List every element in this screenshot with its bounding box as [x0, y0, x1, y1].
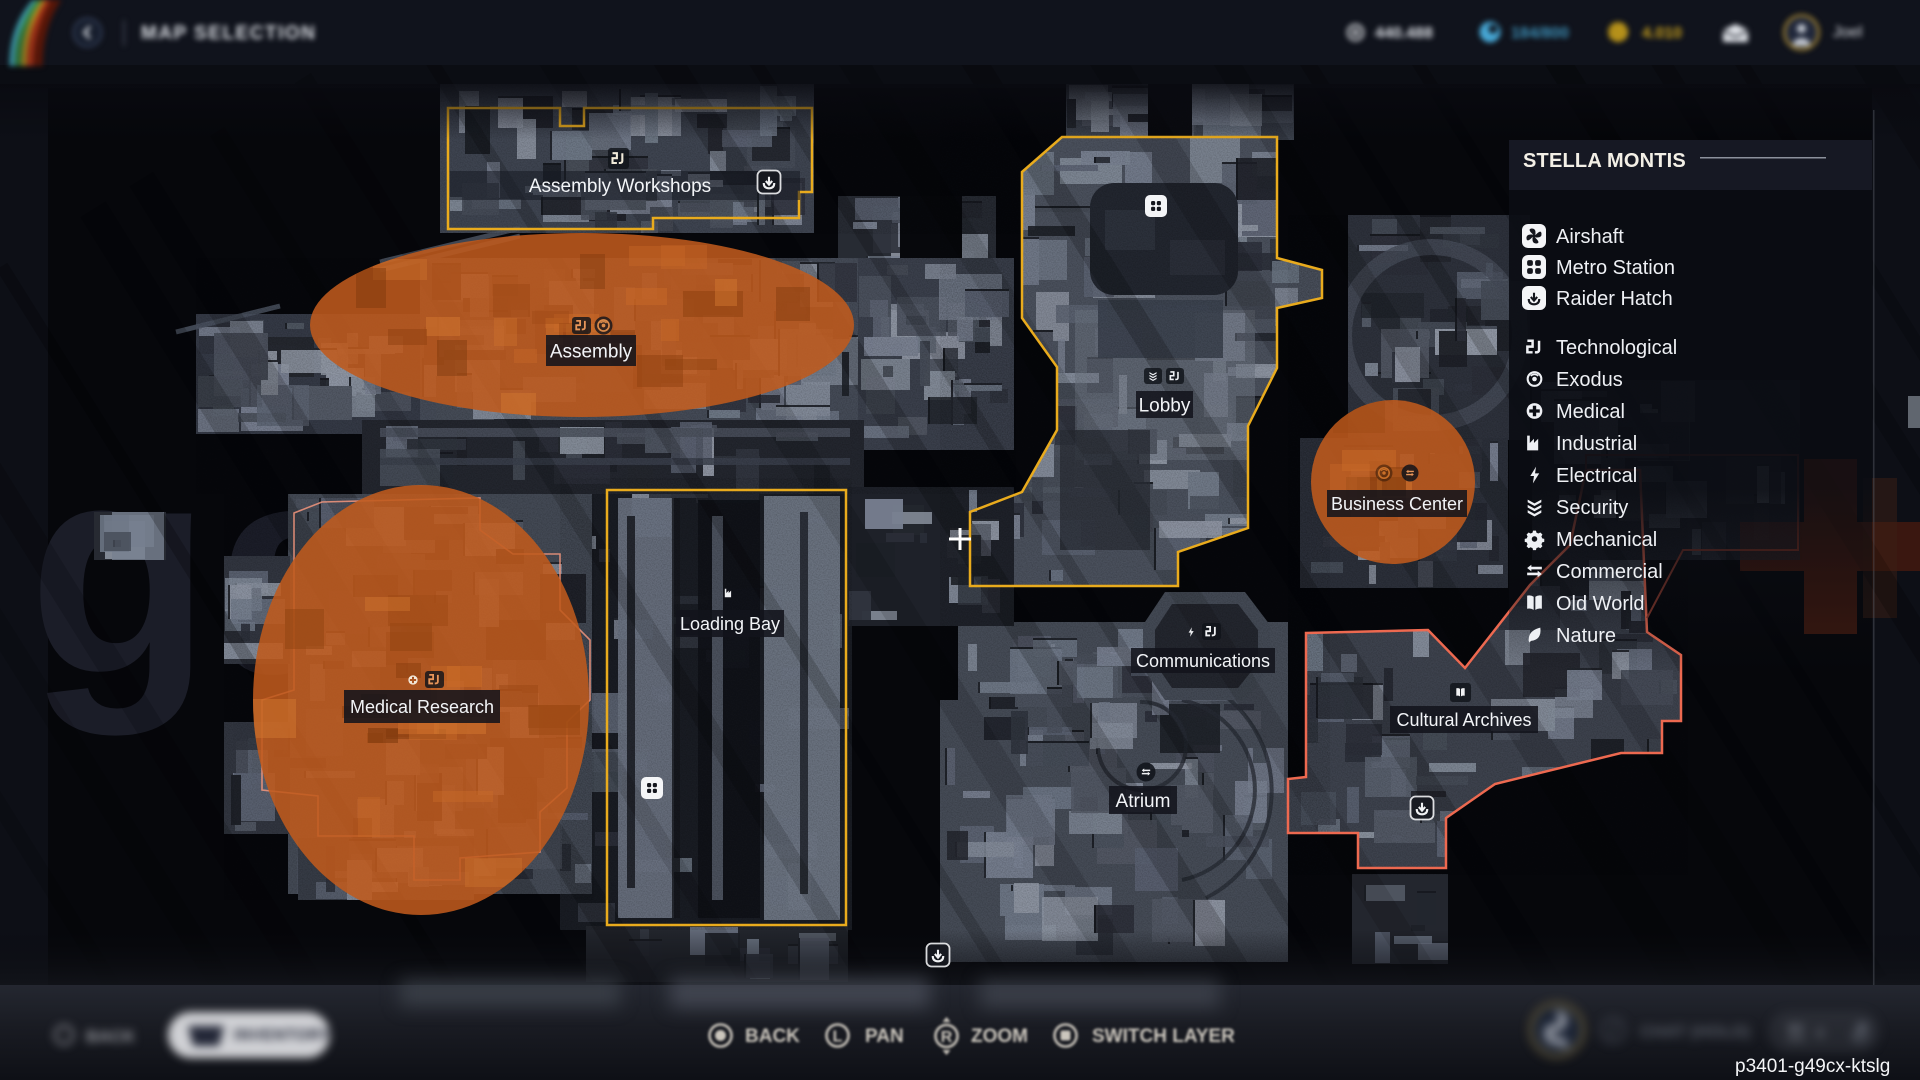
- svg-text:Communications: Communications: [1136, 651, 1270, 671]
- svg-text:0: 0: [1816, 1025, 1824, 1042]
- svg-text:Medical Research: Medical Research: [350, 697, 494, 717]
- svg-text:Security: Security: [1556, 497, 1628, 519]
- svg-text:Raider Hatch: Raider Hatch: [1556, 288, 1673, 310]
- svg-text:Mechanical: Mechanical: [1556, 529, 1657, 551]
- svg-text:Old World: Old World: [1556, 593, 1645, 615]
- svg-text:Medical: Medical: [1556, 401, 1625, 423]
- svg-text:Loading Bay: Loading Bay: [680, 614, 780, 634]
- svg-text:Assembly: Assembly: [550, 341, 633, 362]
- svg-text:Assembly Workshops: Assembly Workshops: [529, 176, 711, 197]
- svg-text:Technological: Technological: [1556, 337, 1677, 359]
- svg-text:Industrial: Industrial: [1556, 433, 1637, 455]
- svg-text:Metro Station: Metro Station: [1556, 257, 1675, 279]
- svg-text:R: R: [941, 1029, 953, 1046]
- svg-text:Lobby: Lobby: [1139, 395, 1191, 416]
- svg-text:Cultural Archives: Cultural Archives: [1396, 710, 1531, 730]
- svg-text:Electrical: Electrical: [1556, 465, 1637, 487]
- svg-text:Business Center: Business Center: [1331, 494, 1463, 514]
- svg-text:Nature: Nature: [1556, 625, 1616, 647]
- svg-text:Airshaft: Airshaft: [1556, 226, 1624, 248]
- svg-text:L: L: [833, 1029, 843, 1046]
- svg-text:Exodus: Exodus: [1556, 369, 1623, 391]
- svg-text:STELLA MONTIS: STELLA MONTIS: [1523, 150, 1686, 172]
- svg-text:Atrium: Atrium: [1116, 791, 1171, 812]
- svg-text:Commercial: Commercial: [1556, 561, 1663, 583]
